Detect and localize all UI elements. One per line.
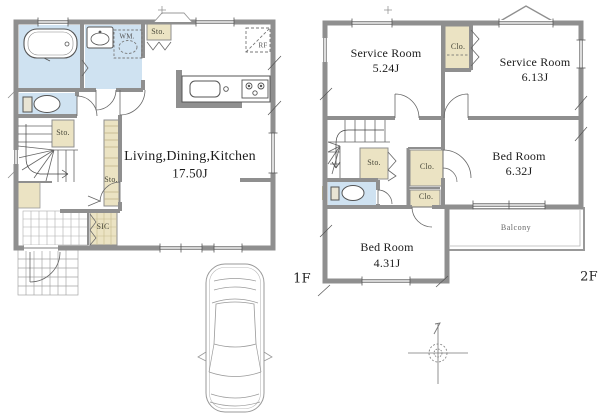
bed-room-2-area: 4.31J <box>374 257 401 269</box>
floorplan-page: Sto. WM. RF Sto. Sto. SIC Living,Dining,… <box>0 0 600 420</box>
clo-2-label: Clo. <box>419 193 433 201</box>
service-room-1-name: Service Room <box>351 47 422 59</box>
floor2-label: 2F <box>580 271 598 284</box>
washbasin-icon <box>87 27 113 48</box>
sto-hall-label: Sto. <box>104 176 117 184</box>
bed-room-1-area: 6.32J <box>506 165 533 177</box>
washing-machine-label: WM. <box>119 34 134 41</box>
genkan-tiles <box>23 211 88 245</box>
sic-label: SIC <box>96 223 109 231</box>
ldk-room-area: 17.50J <box>172 167 208 180</box>
car-icon <box>198 264 272 412</box>
sto-top-label: Sto. <box>151 28 164 36</box>
bed-room-2-name: Bed Room <box>360 241 413 253</box>
service-room-1-area: 5.24J <box>373 62 400 74</box>
kitchen-counter <box>176 28 270 108</box>
entrance-porch <box>18 250 78 295</box>
sto-mid-label: Sto. <box>56 129 69 137</box>
compass-icon <box>408 323 468 384</box>
sto-2f-label: Sto. <box>367 159 380 167</box>
toilet-1f-icon <box>23 96 60 113</box>
refrigerator-label: RF <box>259 43 268 50</box>
service-room-2-area: 6.13J <box>522 71 549 83</box>
service-room-2-name: Service Room <box>500 56 571 68</box>
roof-vent-bump <box>154 13 192 22</box>
toilet-2f-icon <box>331 186 364 201</box>
ldk-room-name: Living,Dining,Kitchen <box>124 150 256 164</box>
floor1-label: 1F <box>293 273 311 286</box>
balcony-label: Balcony <box>501 224 531 232</box>
kitchen-sink-icon <box>190 81 220 97</box>
clo-top-label: Clo. <box>451 43 465 51</box>
bathtub-icon <box>24 29 77 61</box>
bed-room-1-name: Bed Room <box>492 150 545 162</box>
clo-1-label: Clo. <box>420 163 434 171</box>
